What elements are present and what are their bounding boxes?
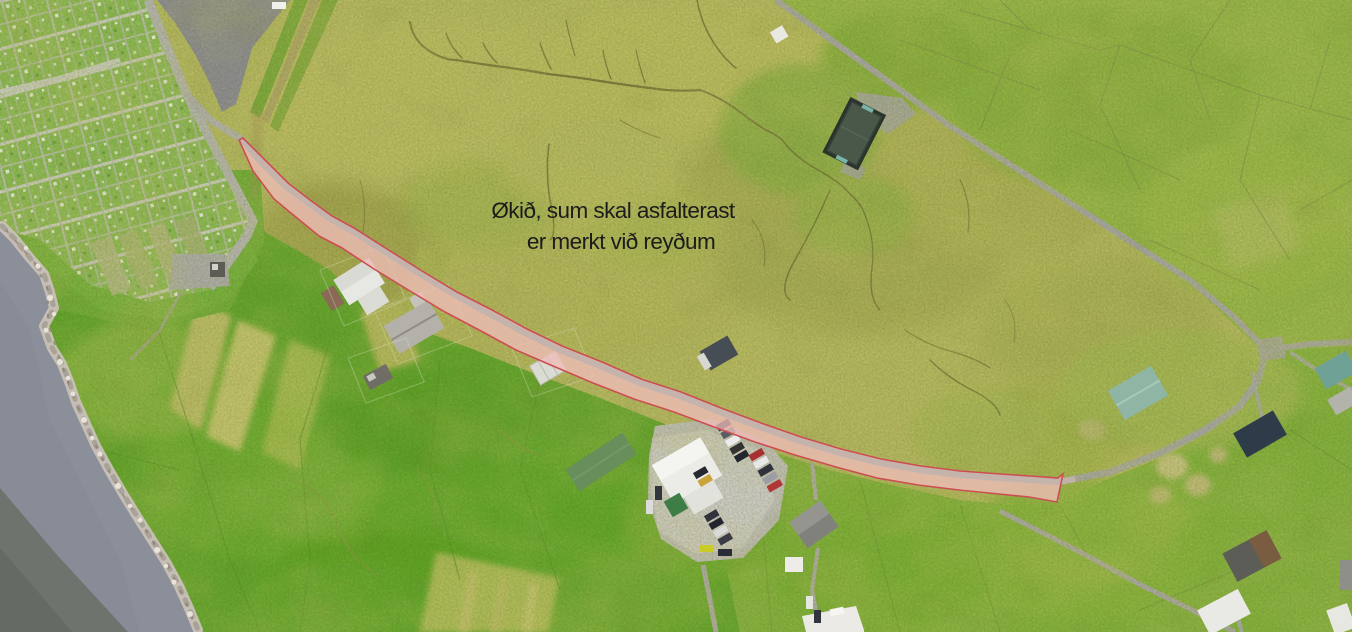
svg-text:Økið, sum skal asfalterast: Økið, sum skal asfalterast <box>491 198 736 223</box>
svg-text:er merkt við reyðum: er merkt við reyðum <box>527 229 715 254</box>
